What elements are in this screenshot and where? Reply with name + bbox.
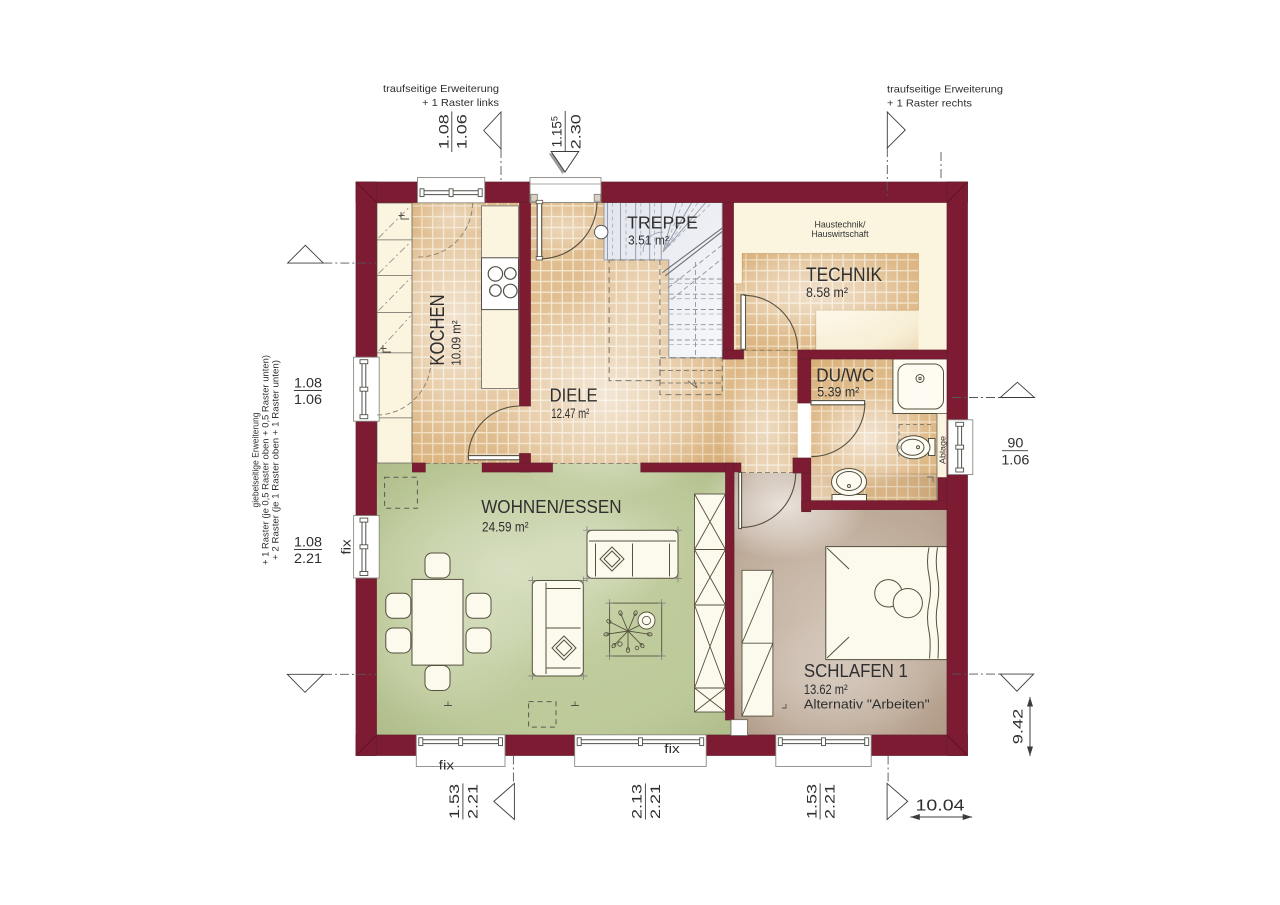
svg-text:2.21: 2.21 — [465, 784, 480, 819]
svg-text:2.21: 2.21 — [823, 784, 838, 819]
svg-text:Alternativ "Arbeiten": Alternativ "Arbeiten" — [804, 698, 930, 712]
svg-text:9.42: 9.42 — [1011, 709, 1026, 745]
svg-text:10.04: 10.04 — [916, 798, 965, 815]
svg-text:10.09 m²: 10.09 m² — [449, 320, 464, 366]
svg-text:TECHNIK: TECHNIK — [806, 264, 882, 286]
svg-text:24.59 m²: 24.59 m² — [482, 520, 529, 535]
svg-text:5.39 m²: 5.39 m² — [817, 385, 859, 400]
svg-text:traufseitige Erweiterung: traufseitige Erweiterung — [383, 83, 499, 95]
svg-text:1.08: 1.08 — [436, 114, 451, 149]
svg-text:1.06: 1.06 — [454, 114, 469, 149]
svg-text:13.62 m²: 13.62 m² — [804, 682, 848, 697]
svg-text:1.06: 1.06 — [1001, 453, 1029, 468]
svg-text:1.53: 1.53 — [447, 784, 462, 819]
svg-text:3.51 m²: 3.51 m² — [628, 233, 670, 248]
svg-text:8.58 m²: 8.58 m² — [806, 285, 848, 300]
svg-text:fix: fix — [664, 742, 680, 756]
svg-text:2.21: 2.21 — [294, 551, 322, 566]
svg-text:1.08: 1.08 — [294, 376, 322, 391]
svg-text:DU/WC: DU/WC — [816, 365, 874, 386]
svg-text:TREPPE: TREPPE — [627, 213, 698, 233]
svg-text:1.08: 1.08 — [294, 535, 322, 550]
svg-text:+ 2 Raster (je 1 Raster oben +: + 2 Raster (je 1 Raster oben + 1 Raster … — [271, 360, 282, 560]
svg-text:2.21: 2.21 — [648, 784, 663, 819]
svg-text:traufseitige Erweiterung: traufseitige Erweiterung — [887, 84, 1003, 96]
svg-text:DIELE: DIELE — [550, 385, 598, 406]
svg-text:SCHLAFEN 1: SCHLAFEN 1 — [804, 660, 908, 681]
svg-text:1.06: 1.06 — [294, 392, 322, 407]
svg-text:KOCHEN: KOCHEN — [427, 294, 449, 365]
svg-text:2.13: 2.13 — [630, 784, 645, 819]
svg-text:2.30: 2.30 — [568, 114, 583, 149]
svg-text:Ablage: Ablage — [939, 435, 948, 464]
svg-text:1.53: 1.53 — [804, 784, 819, 819]
svg-text:+ 1 Raster links: + 1 Raster links — [422, 97, 499, 109]
svg-text:fix: fix — [339, 538, 353, 554]
svg-text:fix: fix — [439, 759, 455, 773]
svg-text:90: 90 — [1007, 436, 1023, 451]
svg-text:WOHNEN/ESSEN: WOHNEN/ESSEN — [481, 496, 621, 517]
svg-text:Hauswirtschaft: Hauswirtschaft — [812, 229, 869, 240]
svg-text:+ 1 Raster rechts: + 1 Raster rechts — [887, 98, 972, 110]
svg-text:12.47 m²: 12.47 m² — [551, 406, 589, 421]
